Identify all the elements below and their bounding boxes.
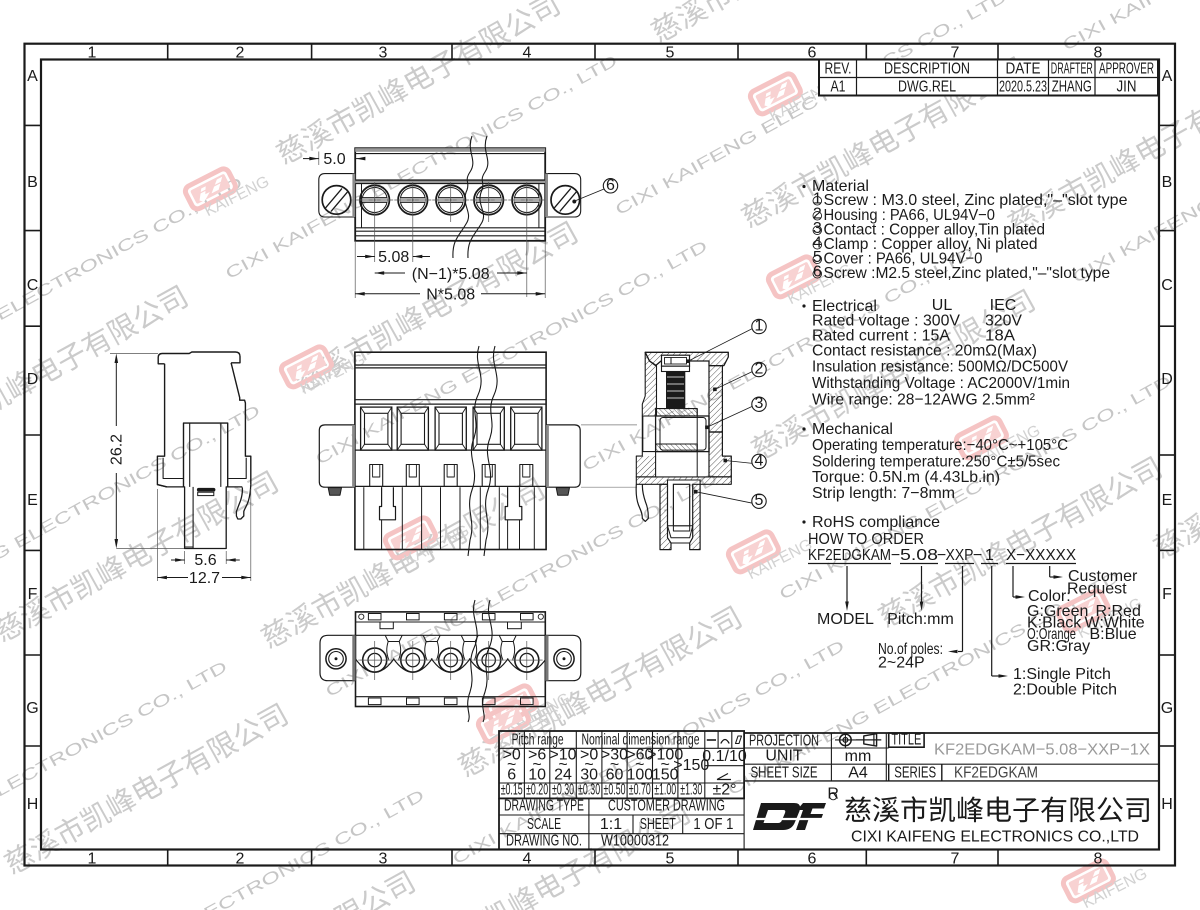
svg-text:DESCRIPTION: DESCRIPTION bbox=[884, 61, 970, 78]
svg-text:CUSTOMER DRAWING: CUSTOMER DRAWING bbox=[608, 798, 725, 815]
svg-text:A4: A4 bbox=[848, 764, 868, 781]
svg-text:1:1: 1:1 bbox=[600, 816, 622, 833]
svg-text:5: 5 bbox=[666, 45, 675, 62]
svg-text:Soldering temperature:250°C±5/: Soldering temperature:250°C±5/5sec bbox=[812, 454, 1060, 471]
svg-text:DWG.REL: DWG.REL bbox=[898, 79, 956, 96]
svg-text:E: E bbox=[27, 492, 38, 509]
svg-text:N*5.08: N*5.08 bbox=[426, 287, 475, 304]
svg-text:SERIES: SERIES bbox=[894, 765, 936, 782]
svg-text:Torque: 0.5N.m (4.43Lb.in): Torque: 0.5N.m (4.43Lb.in) bbox=[812, 469, 1000, 486]
svg-text:±0.70: ±0.70 bbox=[629, 782, 651, 799]
svg-text:IEC: IEC bbox=[990, 297, 1017, 314]
svg-text:KF2EDGKAM: KF2EDGKAM bbox=[808, 547, 891, 564]
svg-text:D: D bbox=[27, 371, 39, 388]
svg-text:Wire range: 28−12AWG 2.5mm²: Wire range: 28−12AWG 2.5mm² bbox=[812, 392, 1036, 409]
svg-text:GR:Gray: GR:Gray bbox=[1027, 638, 1090, 655]
svg-text:(N−1)*5.08: (N−1)*5.08 bbox=[412, 266, 490, 283]
svg-text:F: F bbox=[1162, 586, 1172, 603]
svg-text:±0.50: ±0.50 bbox=[604, 782, 626, 799]
svg-text:1: 1 bbox=[88, 45, 97, 62]
svg-text:±2°: ±2° bbox=[712, 782, 736, 799]
svg-text:6: 6 bbox=[808, 851, 817, 868]
svg-text:DRAWING TYPE: DRAWING TYPE bbox=[504, 798, 584, 815]
svg-text:4: 4 bbox=[523, 851, 532, 868]
svg-text:5.08: 5.08 bbox=[900, 547, 938, 564]
svg-text:A: A bbox=[1162, 68, 1173, 85]
svg-text:R: R bbox=[827, 786, 839, 803]
svg-text:CIXI KAIFENG ELECTRONICS CO.,L: CIXI KAIFENG ELECTRONICS CO.,LTD bbox=[851, 829, 1139, 846]
svg-text:Screw :M2.5 steel,Zinc plated,: Screw :M2.5 steel,Zinc plated,"–"slot ty… bbox=[824, 265, 1111, 282]
svg-text:B:Blue: B:Blue bbox=[1090, 626, 1137, 643]
svg-text:2: 2 bbox=[755, 361, 764, 378]
svg-text:D: D bbox=[1161, 371, 1173, 388]
svg-text:Operating temperature:−40°C~+1: Operating temperature:−40°C~+105°C bbox=[812, 437, 1068, 454]
svg-text:2~24P: 2~24P bbox=[878, 655, 925, 672]
svg-text:2:Double Pitch: 2:Double Pitch bbox=[1013, 682, 1117, 699]
svg-text:SCALE: SCALE bbox=[527, 816, 561, 833]
svg-text:A1: A1 bbox=[831, 79, 846, 96]
svg-text:G: G bbox=[26, 700, 38, 717]
svg-text:XXP: XXP bbox=[946, 547, 974, 564]
svg-text:±0.15: ±0.15 bbox=[501, 782, 523, 799]
svg-text:Strip length: 7−8mm: Strip length: 7−8mm bbox=[812, 485, 955, 502]
svg-text:12.7: 12.7 bbox=[189, 570, 220, 587]
svg-text:2020.5.23: 2020.5.23 bbox=[999, 79, 1047, 96]
svg-text:3: 3 bbox=[755, 395, 764, 412]
svg-text:4: 4 bbox=[523, 45, 532, 62]
svg-text:5.08: 5.08 bbox=[378, 249, 409, 266]
svg-text:H: H bbox=[27, 796, 39, 813]
svg-text:Pitch:mm: Pitch:mm bbox=[887, 611, 954, 628]
svg-text:C: C bbox=[1161, 277, 1173, 294]
svg-text:±0.20: ±0.20 bbox=[526, 782, 548, 799]
svg-text:Withstanding Voltage : AC2000V: Withstanding Voltage : AC2000V/1min bbox=[812, 375, 1070, 392]
svg-text:F: F bbox=[28, 586, 38, 603]
svg-text:6: 6 bbox=[808, 45, 817, 62]
svg-text:26.2: 26.2 bbox=[109, 434, 126, 465]
svg-text:±0.30: ±0.30 bbox=[552, 782, 574, 799]
svg-text:G: G bbox=[1161, 700, 1173, 717]
svg-text:REV.: REV. bbox=[825, 61, 852, 78]
svg-text:KF2EDGKAM: KF2EDGKAM bbox=[954, 765, 1038, 782]
svg-text:1: 1 bbox=[985, 547, 994, 564]
svg-text:−: − bbox=[973, 547, 982, 564]
svg-text:Request: Request bbox=[1067, 581, 1127, 598]
svg-text:mm: mm bbox=[845, 748, 872, 765]
svg-text:6: 6 bbox=[813, 264, 822, 281]
svg-text:C: C bbox=[27, 277, 39, 294]
svg-text:8: 8 bbox=[1094, 851, 1103, 868]
svg-text:±1.30: ±1.30 bbox=[680, 782, 702, 799]
svg-text:3: 3 bbox=[379, 851, 388, 868]
svg-text:TITLE: TITLE bbox=[891, 731, 921, 748]
svg-text:3: 3 bbox=[379, 45, 388, 62]
svg-text:X−XXXXX: X−XXXXX bbox=[1006, 547, 1076, 564]
svg-text:1:Single Pitch: 1:Single Pitch bbox=[1013, 666, 1111, 683]
svg-text:4: 4 bbox=[755, 452, 764, 469]
svg-text:Mechanical: Mechanical bbox=[812, 421, 893, 438]
svg-text:APPROVER: APPROVER bbox=[1099, 61, 1154, 78]
svg-text:UNIT: UNIT bbox=[765, 748, 803, 765]
svg-text:−: − bbox=[891, 547, 900, 564]
svg-text:HOW TO ORDER: HOW TO ORDER bbox=[808, 531, 924, 548]
svg-text:KF2EDGKAM−5.08−XXP−1X: KF2EDGKAM−5.08−XXP−1X bbox=[934, 742, 1150, 759]
svg-text:ZHANG: ZHANG bbox=[1052, 79, 1092, 96]
svg-text:1: 1 bbox=[755, 318, 764, 335]
svg-text:RoHS compliance: RoHS compliance bbox=[812, 514, 940, 531]
svg-text:UL: UL bbox=[932, 297, 953, 314]
svg-text:1 OF 1: 1 OF 1 bbox=[693, 816, 733, 833]
svg-text:±0.30: ±0.30 bbox=[578, 782, 600, 799]
svg-text:SHEET SIZE: SHEET SIZE bbox=[751, 764, 818, 781]
svg-text:DATE: DATE bbox=[1006, 61, 1041, 78]
svg-text:DRAFTER: DRAFTER bbox=[1051, 61, 1093, 78]
svg-text:SHEET: SHEET bbox=[640, 816, 676, 833]
svg-text:B: B bbox=[27, 174, 38, 191]
svg-text:MODEL: MODEL bbox=[817, 611, 874, 628]
svg-text:2: 2 bbox=[236, 45, 245, 62]
svg-text:H: H bbox=[1161, 796, 1173, 813]
svg-text:Insulation resistance: 500MΩ/D: Insulation resistance: 500MΩ/DC500V bbox=[812, 359, 1068, 376]
svg-text:2: 2 bbox=[236, 851, 245, 868]
svg-text:W10000312: W10000312 bbox=[601, 833, 669, 850]
svg-text:Contact resistance : 20mΩ(Max): Contact resistance : 20mΩ(Max) bbox=[812, 343, 1037, 360]
svg-text:0.1/10: 0.1/10 bbox=[702, 748, 747, 765]
svg-text:JIN: JIN bbox=[1117, 79, 1137, 96]
svg-text:6: 6 bbox=[606, 177, 615, 194]
svg-text:B: B bbox=[1162, 174, 1173, 191]
svg-text:5.0: 5.0 bbox=[323, 151, 345, 168]
svg-text:7: 7 bbox=[951, 851, 960, 868]
svg-text:E: E bbox=[1162, 492, 1173, 509]
svg-text:DRAWING NO.: DRAWING NO. bbox=[506, 833, 582, 850]
svg-text:5.6: 5.6 bbox=[194, 552, 216, 569]
svg-text:1: 1 bbox=[88, 851, 97, 868]
svg-text:±1.00: ±1.00 bbox=[654, 782, 676, 799]
svg-text:A: A bbox=[27, 68, 38, 85]
svg-text:5: 5 bbox=[666, 851, 675, 868]
svg-text:5: 5 bbox=[755, 492, 764, 509]
